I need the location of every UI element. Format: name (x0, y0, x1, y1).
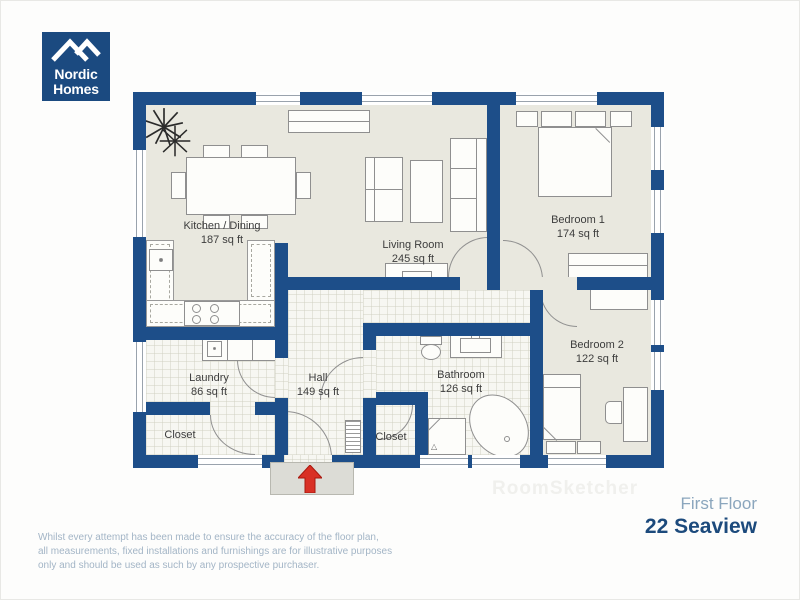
door-opening (460, 277, 487, 290)
sofa-line (451, 198, 476, 199)
room-name: Closet (145, 428, 215, 442)
room-name: Laundry (159, 371, 259, 385)
stove-burner (210, 315, 219, 324)
plant-icon (158, 124, 192, 158)
room-label-closet-left: Closet (145, 428, 215, 442)
room-label-bathroom: Bathroom 126 sq ft (401, 368, 521, 397)
wall-laundry-closet (146, 402, 210, 415)
drawer-unit (577, 441, 601, 454)
disclaimer-line: all measurements, fixed installations an… (38, 545, 498, 559)
nightstand (610, 111, 632, 127)
laundry-counter-line (252, 338, 253, 360)
hall-corridor-floor (363, 290, 530, 323)
laundry-counter-line (227, 338, 228, 360)
shower-drain-icon: △ (431, 442, 437, 451)
wall-bathroom-top (363, 323, 530, 336)
room-area: 122 sq ft (537, 352, 657, 366)
address-title: 22 Seaview (460, 514, 757, 540)
wall-hall-bathroom (363, 398, 376, 455)
pillow (575, 111, 606, 127)
room-label-kitchen: Kitchen / Dining 187 sq ft (162, 219, 282, 248)
window (133, 342, 146, 412)
stove-burner (210, 304, 219, 313)
sideboard-line (289, 121, 369, 122)
floor-label: First Floor (460, 494, 757, 514)
title-block: First Floor 22 Seaview (460, 494, 757, 541)
door-opening (210, 402, 255, 415)
wall-stub (487, 277, 500, 290)
bathtub-drain (504, 436, 510, 442)
wall-living-hall (288, 277, 460, 290)
room-area: 174 sq ft (518, 227, 638, 241)
dining-chair (171, 172, 186, 199)
single-bed (543, 374, 581, 440)
room-name: Bedroom 2 (537, 338, 657, 352)
room-label-closet-right: Closet (356, 430, 426, 444)
room-area: 149 sq ft (283, 385, 353, 399)
sink-drain (159, 258, 163, 262)
pillow-line (544, 387, 580, 388)
room-name: Kitchen / Dining (162, 219, 282, 233)
room-label-bedroom2: Bedroom 2 122 sq ft (537, 338, 657, 367)
disclaimer-text: Whilst every attempt has been made to en… (38, 531, 498, 574)
dresser-line (569, 265, 647, 266)
washer-dot (213, 347, 216, 350)
dining-table (186, 157, 296, 215)
nightstand (516, 111, 538, 127)
dining-chair (296, 172, 311, 199)
stove-burner (192, 304, 201, 313)
room-area: 245 sq ft (354, 252, 472, 266)
room-area: 86 sq ft (159, 385, 259, 399)
room-area: 126 sq ft (401, 382, 521, 396)
window (420, 455, 468, 468)
room-name: Bathroom (401, 368, 521, 382)
window (548, 455, 606, 468)
disclaimer-line: only and should be used as such by any p… (38, 559, 498, 573)
wall-laundry-closet (255, 402, 275, 415)
pillow (541, 111, 572, 127)
window (256, 92, 300, 105)
room-label-hall: Hall 149 sq ft (283, 371, 353, 400)
sofa-line (366, 189, 402, 190)
coffee-table (410, 160, 443, 223)
wall-laundry-hall (275, 398, 288, 455)
wall-bedroom1-bedroom2 (577, 277, 651, 290)
room-name: Bedroom 1 (518, 213, 638, 227)
stove-burner (192, 315, 201, 324)
window (362, 92, 432, 105)
kitchen-counter (247, 240, 275, 301)
window (198, 455, 262, 468)
disclaimer-line: Whilst every attempt has been made to en… (38, 531, 498, 545)
window (133, 150, 146, 237)
sofa (450, 138, 487, 232)
wall-kitchen-laundry (146, 327, 288, 340)
wall-kitchen-hall (275, 243, 288, 340)
window (516, 92, 597, 105)
double-bed (538, 127, 612, 197)
wall-hall-bathroom (363, 336, 376, 350)
floor-plan-page: Nordic Homes (0, 0, 800, 600)
window (472, 455, 520, 468)
sofa-line (476, 139, 477, 231)
door-opening (363, 350, 376, 398)
room-label-living: Living Room 245 sq ft (354, 238, 472, 267)
desk-chair (605, 401, 622, 424)
wall-laundry-hall (275, 340, 288, 358)
wall-hall-bedroom2 (530, 290, 543, 455)
room-area: 187 sq ft (162, 233, 282, 247)
dresser (590, 289, 648, 310)
room-name: Living Room (354, 238, 472, 252)
room-label-laundry: Laundry 86 sq ft (159, 371, 259, 400)
room-name: Hall (283, 371, 353, 385)
room-label-bedroom1: Bedroom 1 174 sq ft (518, 213, 638, 242)
room-name: Closet (356, 430, 426, 444)
door-opening (500, 277, 577, 290)
window (651, 190, 664, 233)
window (651, 127, 664, 170)
drawer-unit (546, 441, 576, 454)
entrance-arrow-icon (298, 465, 322, 493)
sofa-line (451, 168, 476, 169)
desk (623, 387, 648, 442)
vanity-sink (460, 338, 491, 353)
toilet-bowl (421, 344, 441, 360)
wall-living-bedroom1 (487, 105, 500, 277)
